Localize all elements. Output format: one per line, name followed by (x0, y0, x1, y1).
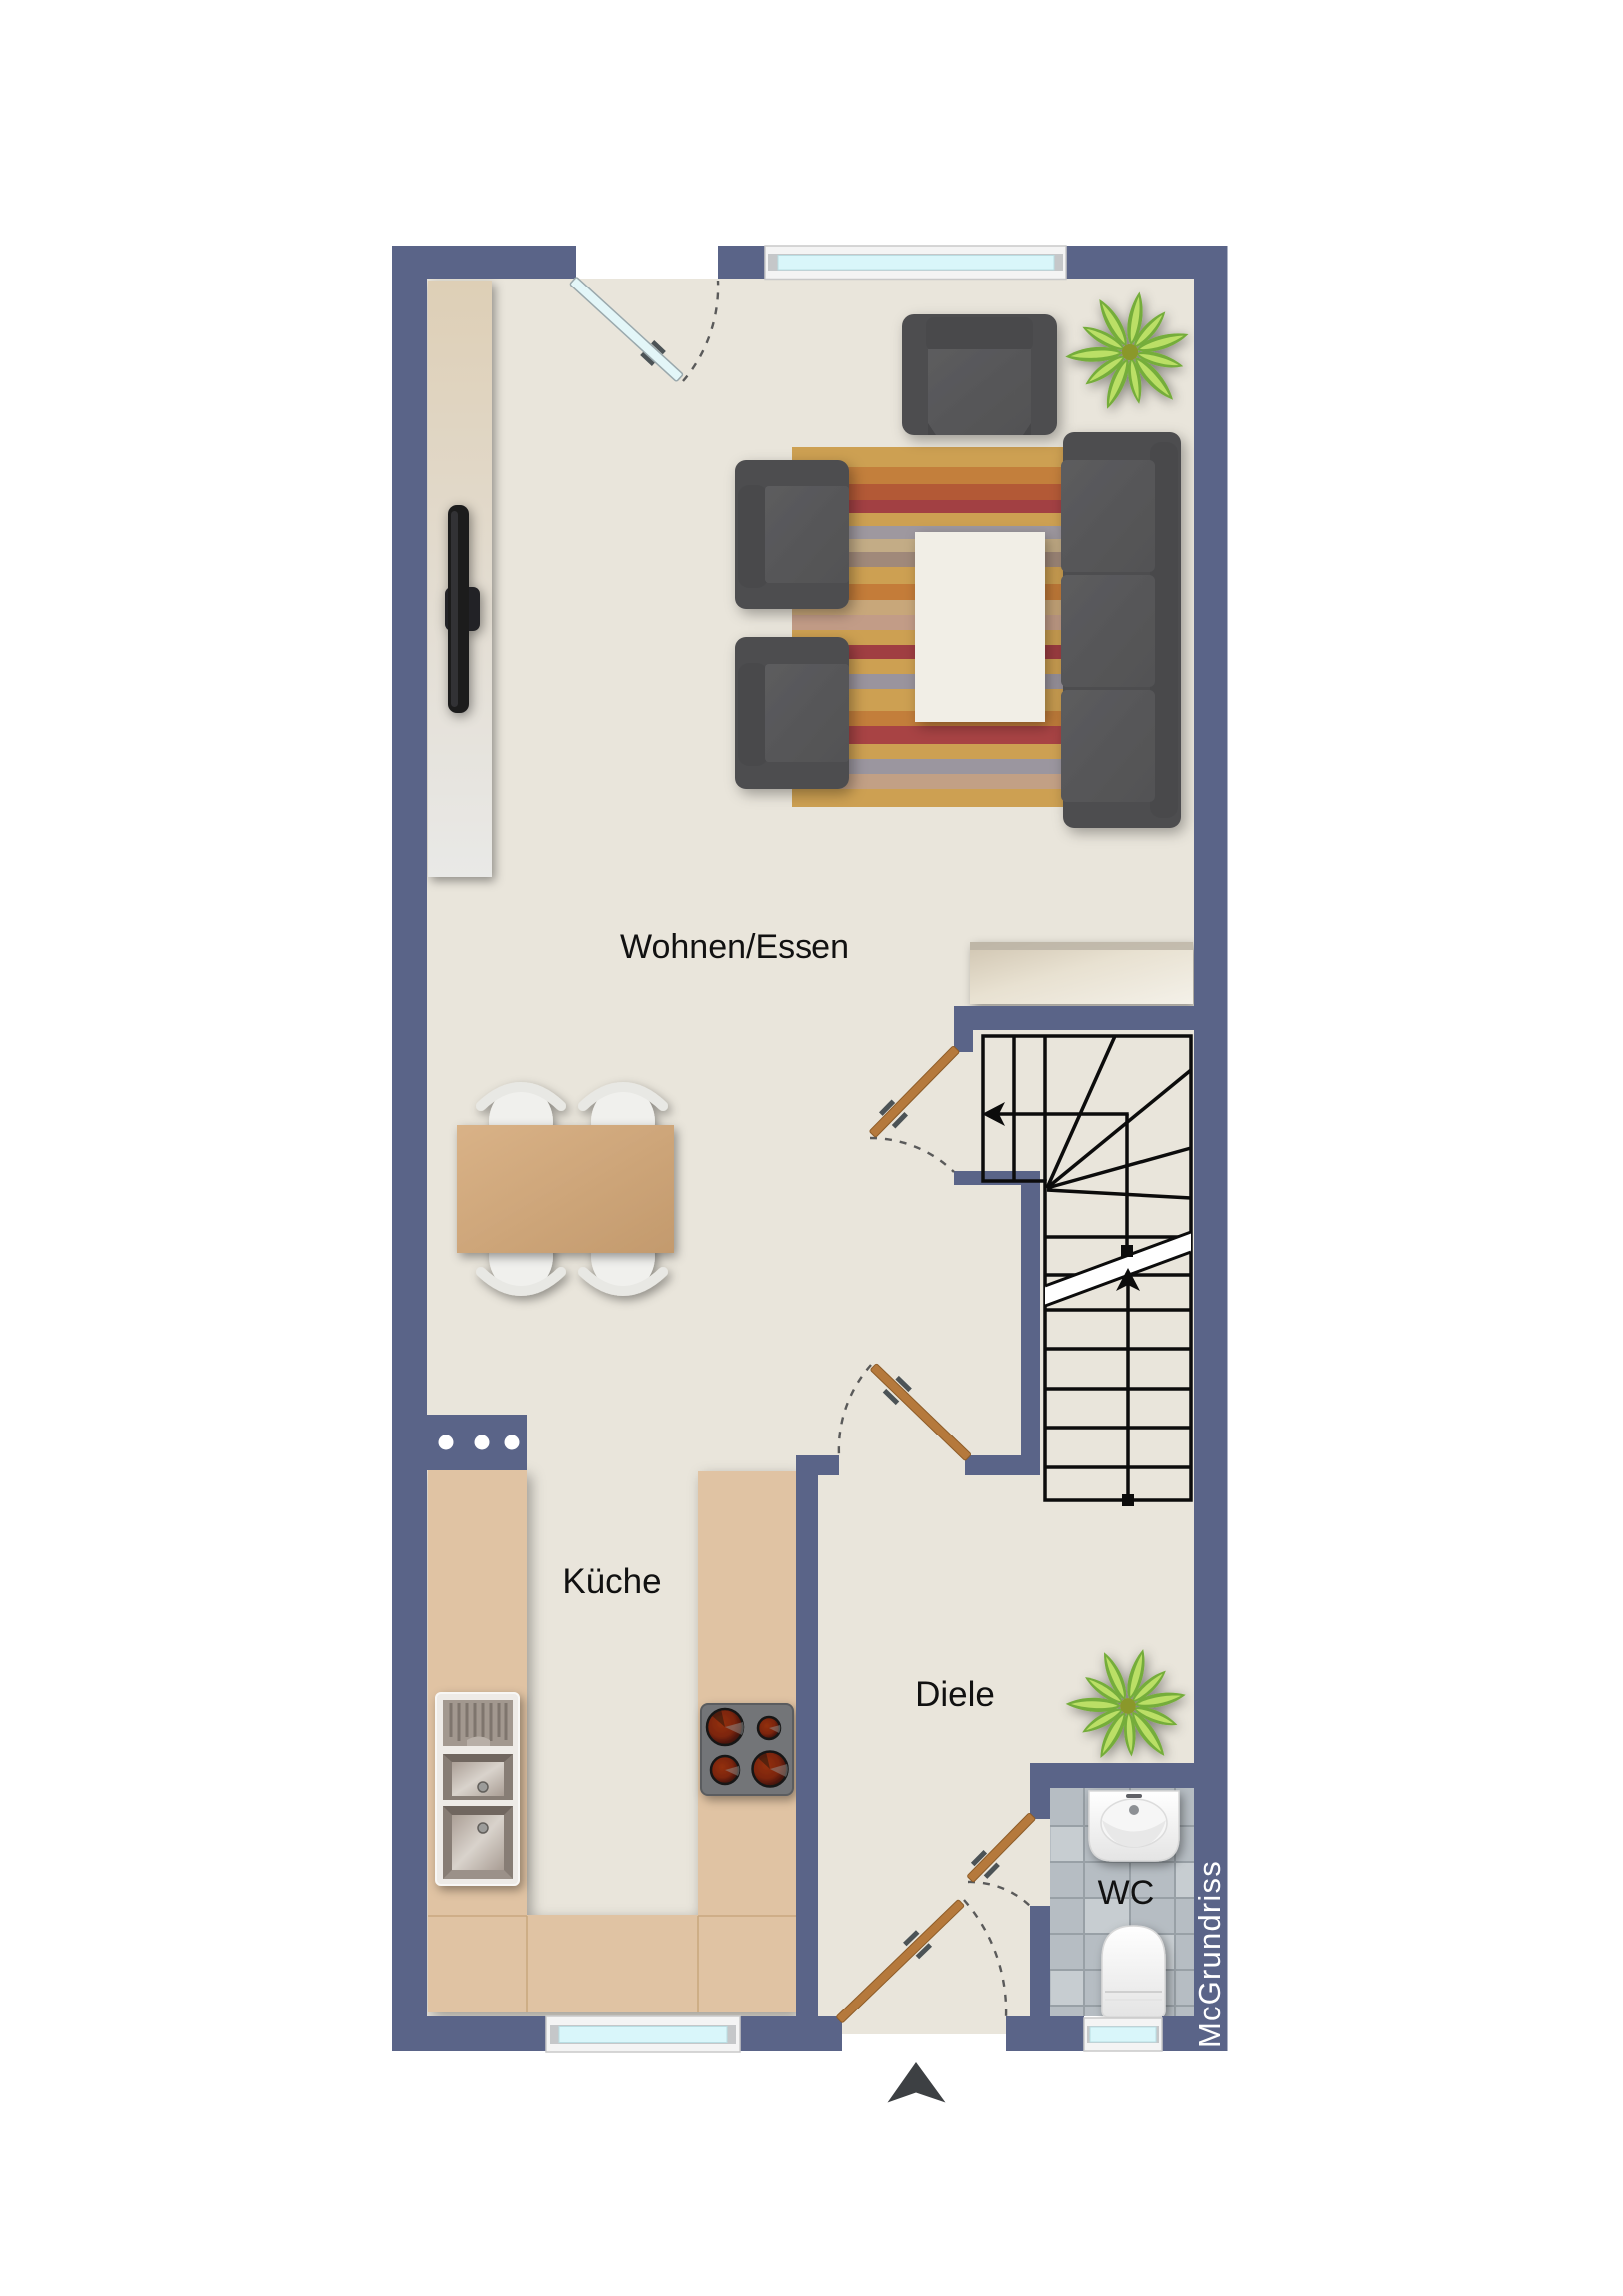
svg-text:WC: WC (1098, 1874, 1155, 1912)
svg-text:McGrundriss: McGrundriss (1192, 1860, 1227, 2048)
svg-text:Diele: Diele (915, 1675, 995, 1714)
svg-text:Wohnen/Essen: Wohnen/Essen (620, 928, 849, 966)
svg-text:Küche: Küche (562, 1562, 661, 1601)
